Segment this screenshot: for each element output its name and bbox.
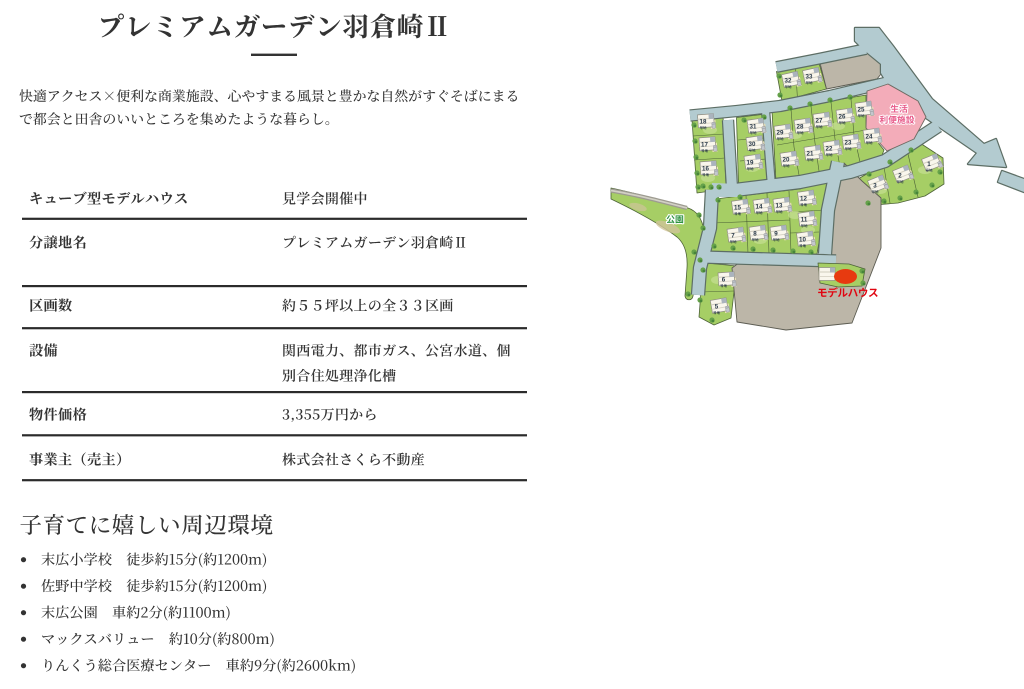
svg-text:22: 22 (826, 146, 833, 153)
svg-text:27: 27 (816, 118, 823, 125)
svg-text:15: 15 (734, 205, 741, 212)
svg-text:30: 30 (749, 141, 756, 148)
svg-text:21: 21 (807, 151, 814, 158)
svg-text:9: 9 (774, 231, 778, 238)
svg-text:2: 2 (898, 173, 902, 180)
svg-text:1: 1 (927, 161, 931, 168)
svg-text:25: 25 (858, 107, 865, 114)
svg-text:7: 7 (731, 233, 735, 240)
svg-text:33: 33 (806, 74, 813, 81)
svg-text:3: 3 (873, 183, 877, 190)
svg-text:29: 29 (777, 130, 784, 137)
svg-text:19: 19 (747, 160, 754, 167)
svg-text:23: 23 (845, 140, 852, 147)
svg-text:28: 28 (797, 124, 804, 131)
svg-text:31: 31 (750, 124, 757, 131)
svg-text:20: 20 (783, 157, 790, 164)
svg-text:18: 18 (700, 119, 707, 126)
svg-text:11: 11 (801, 217, 808, 224)
svg-text:10: 10 (799, 237, 806, 244)
svg-text:12: 12 (800, 196, 807, 203)
svg-text:5: 5 (715, 304, 719, 311)
svg-text:14: 14 (756, 204, 763, 211)
svg-text:13: 13 (776, 203, 783, 210)
svg-text:26: 26 (839, 114, 846, 121)
svg-text:17: 17 (701, 142, 708, 149)
svg-text:8: 8 (753, 231, 757, 238)
svg-text:24: 24 (866, 134, 873, 141)
svg-text:6: 6 (722, 277, 726, 284)
svg-text:32: 32 (785, 78, 792, 85)
svg-text:16: 16 (702, 166, 709, 173)
